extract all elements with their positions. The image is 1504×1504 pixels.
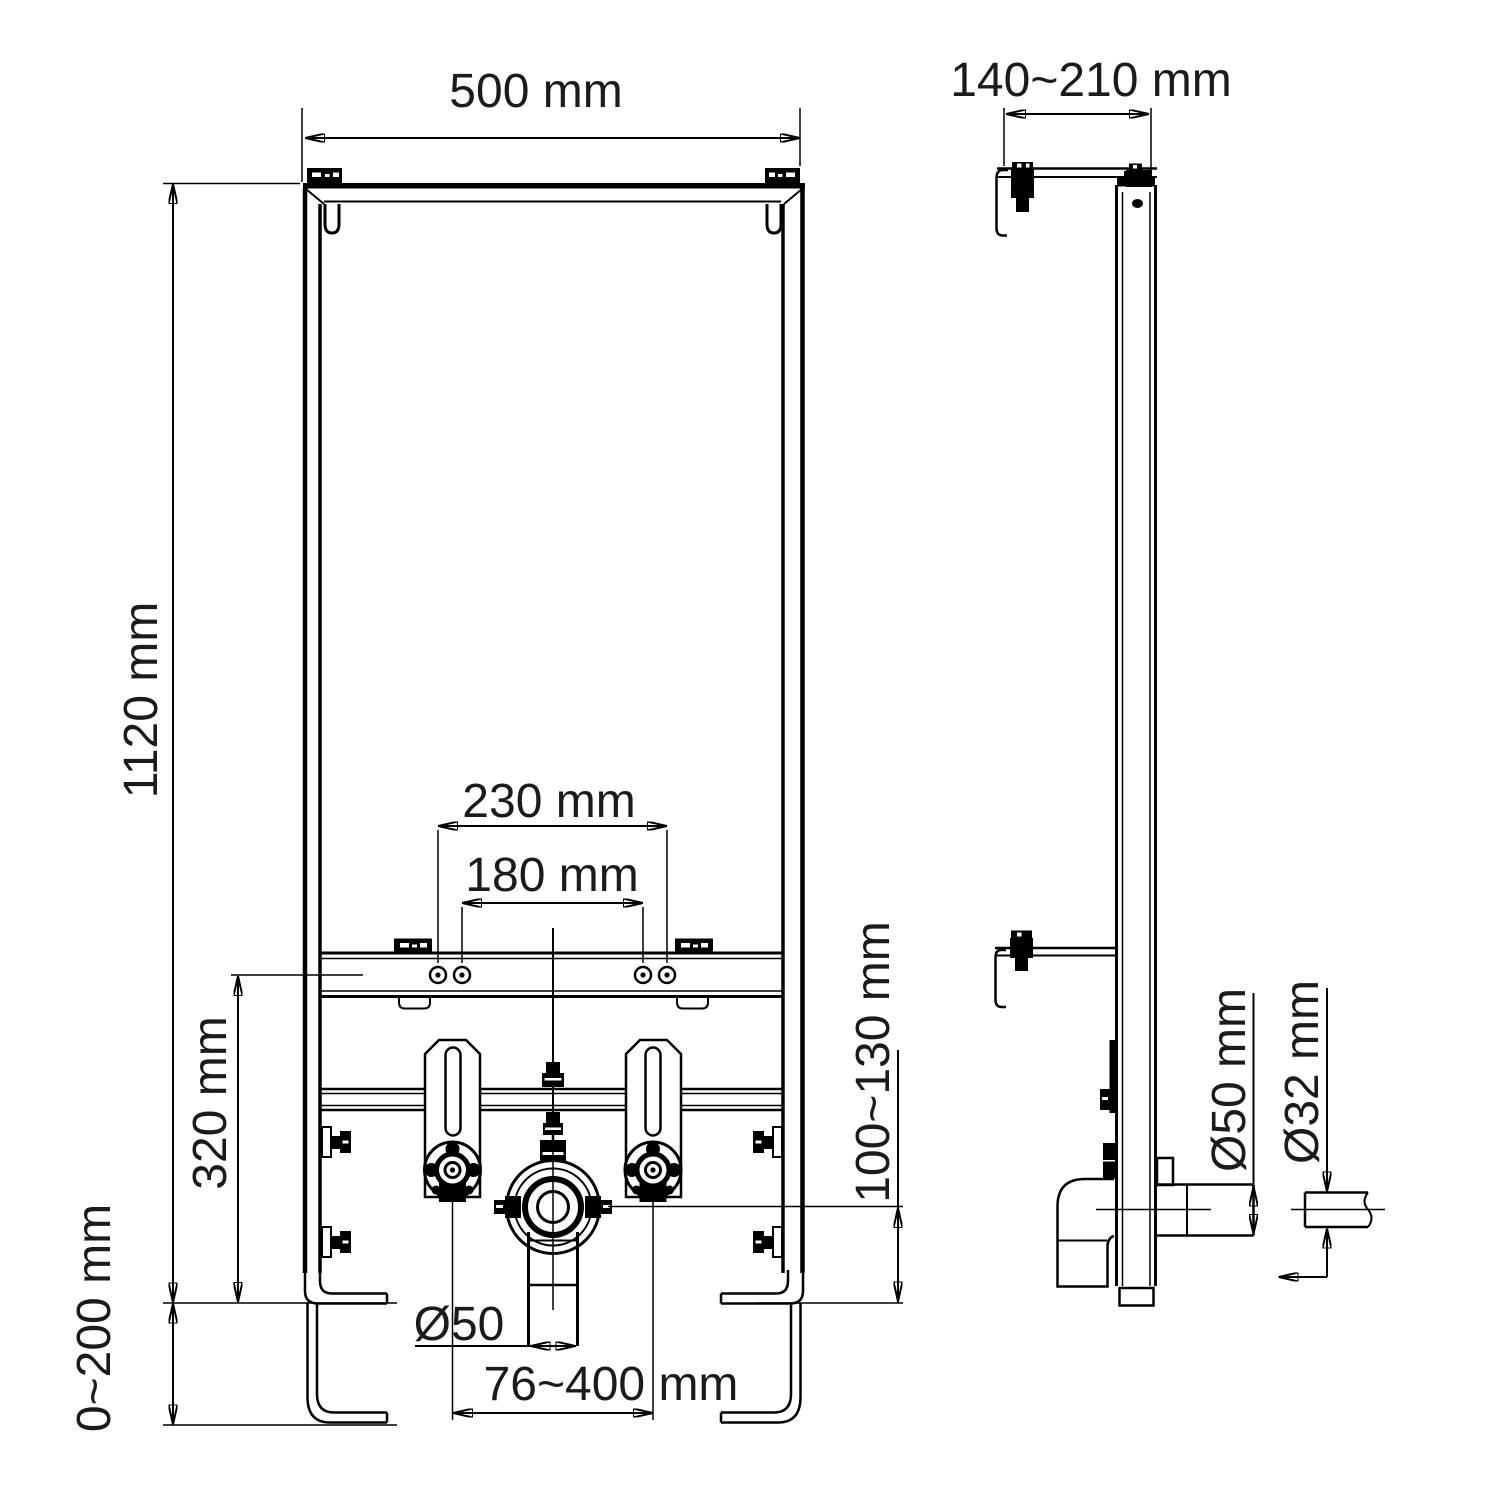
hanger-hook-left <box>325 204 339 233</box>
dim-drain-pipe-front: Ø50 <box>414 1298 576 1351</box>
top-anchor-plate-left <box>307 168 342 183</box>
fixing-stud-flange-left <box>425 1142 481 1420</box>
stud-height-label: 320 mm <box>184 1016 237 1189</box>
dim-waste-pipe: Ø32 mm <box>1276 980 1329 1277</box>
adjustment-slot-left <box>446 1048 461 1136</box>
valve-bolt-left <box>494 1196 521 1218</box>
frame-top-rail <box>303 183 805 189</box>
outer-holes-label: 230 mm <box>462 775 635 828</box>
bar-tab-left <box>399 998 430 1009</box>
corner-gusset-right <box>784 189 802 204</box>
dim-stud-spacing: 76~400 mm <box>453 1358 738 1413</box>
adjustable-foot-left <box>305 1270 387 1423</box>
adjustment-slot-right <box>646 1048 661 1136</box>
wall-hook-top <box>997 170 1009 236</box>
bar-tab-right <box>677 998 708 1009</box>
clamp-plate-left <box>394 939 432 954</box>
inner-holes-label: 180 mm <box>465 849 638 902</box>
clamp-plate-right <box>675 939 713 954</box>
drain-socket-label: Ø50 mm <box>1203 988 1256 1172</box>
top-anchor-plate-right <box>765 168 800 183</box>
valve-bolt-right <box>585 1196 612 1218</box>
dim-side-depth: 140~210 mm <box>950 54 1232 182</box>
drain-elbow <box>1058 1179 1115 1287</box>
dimensions: 500 mm 1120 mm 320 mm 0~200 mm 230 mm <box>68 54 1329 1432</box>
drain-pipe-label: Ø50 <box>414 1298 505 1351</box>
wall-bracket-top <box>997 162 1158 236</box>
outlet-height-label: 100~130 mm <box>847 921 900 1203</box>
side-depth-label: 140~210 mm <box>950 54 1232 107</box>
front-height-label: 1120 mm <box>115 602 168 799</box>
front-width-label: 500 mm <box>449 65 622 118</box>
technical-drawing: 500 mm 1120 mm 320 mm 0~200 mm 230 mm <box>0 0 1504 1504</box>
rail-hole <box>1132 199 1143 208</box>
corner-gusset-left <box>306 189 324 204</box>
dim-drain-socket-side: Ø50 mm <box>1203 988 1256 1234</box>
hanger-hook-right <box>767 204 781 233</box>
side-rail <box>1117 171 1156 1306</box>
waste-pipe-label: Ø32 mm <box>1276 980 1329 1164</box>
drawing-canvas: 500 mm 1120 mm 320 mm 0~200 mm 230 mm <box>0 0 1504 1504</box>
wall-hook-lower <box>996 950 1007 1007</box>
side-rail-foot <box>1120 1288 1154 1306</box>
wall-bracket-lower <box>995 931 1115 1008</box>
stud-spacing-label: 76~400 mm <box>484 1358 739 1411</box>
leg-adjustment-label: 0~200 mm <box>68 1204 121 1432</box>
waste-pipe <box>1291 1193 1385 1228</box>
dim-front-width: 500 mm <box>302 65 800 182</box>
side-fixing-plate <box>1100 1040 1117 1179</box>
socket-collar <box>1157 1158 1173 1185</box>
